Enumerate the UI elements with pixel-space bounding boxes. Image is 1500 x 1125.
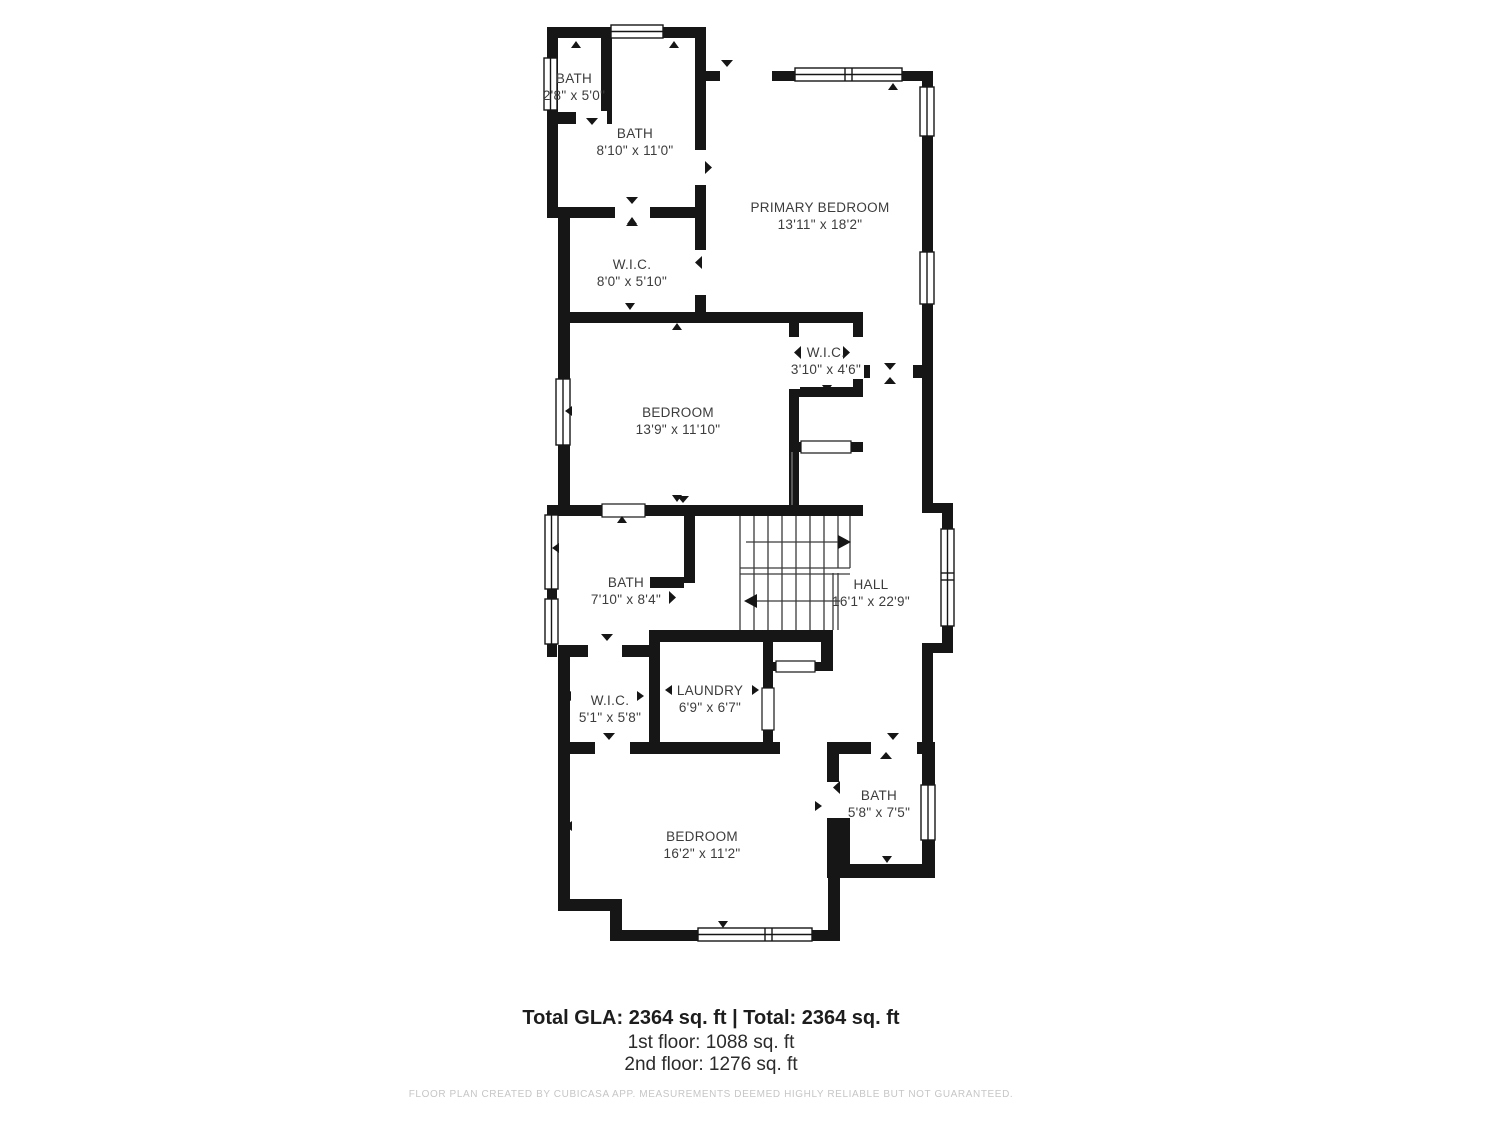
room-label-bedroom-lower: BEDROOM 16'2" x 11'2" bbox=[664, 828, 741, 862]
room-dims: 5'8" x 7'5" bbox=[848, 804, 910, 821]
room-label-bath-small: BATH 2'8" x 5'0" bbox=[543, 70, 605, 104]
total-area-text: Total GLA: 2364 sq. ft | Total: 2364 sq.… bbox=[522, 1007, 899, 1030]
room-dims: 8'10" x 11'0" bbox=[597, 142, 674, 159]
room-dims: 13'9" x 11'10" bbox=[636, 421, 721, 438]
room-label-wic-primary: W.I.C. 8'0" x 5'10" bbox=[597, 256, 667, 290]
room-name: BATH bbox=[543, 70, 605, 87]
room-name: BATH bbox=[591, 574, 661, 591]
room-dims: 3'10" x 4'6" bbox=[791, 361, 861, 378]
room-name: PRIMARY BEDROOM bbox=[750, 199, 889, 216]
disclaimer-text: FLOOR PLAN CREATED BY CUBICASA APP. MEAS… bbox=[409, 1089, 1014, 1100]
room-name: BEDROOM bbox=[636, 404, 721, 421]
room-label-laundry: LAUNDRY 6'9" x 6'7" bbox=[677, 682, 743, 716]
room-label-bath-upper: BATH 8'10" x 11'0" bbox=[597, 125, 674, 159]
room-name: HALL bbox=[832, 576, 910, 593]
room-name: BEDROOM bbox=[664, 828, 741, 845]
first-floor-area: 1st floor: 1088 sq. ft bbox=[628, 1032, 795, 1054]
room-dims: 5'1" x 5'8" bbox=[579, 709, 641, 726]
room-dims: 2'8" x 5'0" bbox=[543, 87, 605, 104]
second-floor-area: 2nd floor: 1276 sq. ft bbox=[624, 1054, 797, 1076]
room-label-wic-lower: W.I.C. 5'1" x 5'8" bbox=[579, 692, 641, 726]
floorplan-page: BATH 2'8" x 5'0" BATH 8'10" x 11'0" PRIM… bbox=[0, 0, 1500, 1125]
room-dims: 16'1" x 22'9" bbox=[832, 593, 910, 610]
room-label-hall: HALL 16'1" x 22'9" bbox=[832, 576, 910, 610]
room-name: W.I.C. bbox=[597, 256, 667, 273]
room-dims: 13'11" x 18'2" bbox=[750, 216, 889, 233]
room-label-primary-bedroom: PRIMARY BEDROOM 13'11" x 18'2" bbox=[750, 199, 889, 233]
room-dims: 16'2" x 11'2" bbox=[664, 845, 741, 862]
room-name: W.I.C. bbox=[579, 692, 641, 709]
room-dims: 7'10" x 8'4" bbox=[591, 591, 661, 608]
room-name: W.I.C. bbox=[791, 344, 861, 361]
room-label-bath-mid: BATH 7'10" x 8'4" bbox=[591, 574, 661, 608]
room-dims: 8'0" x 5'10" bbox=[597, 273, 667, 290]
floorplan-drawing bbox=[0, 0, 1500, 1125]
room-name: LAUNDRY bbox=[677, 682, 743, 699]
room-label-wic-small: W.I.C. 3'10" x 4'6" bbox=[791, 344, 861, 378]
room-name: BATH bbox=[848, 787, 910, 804]
room-name: BATH bbox=[597, 125, 674, 142]
room-dims: 6'9" x 6'7" bbox=[677, 699, 743, 716]
room-label-bath-lower: BATH 5'8" x 7'5" bbox=[848, 787, 910, 821]
room-label-bedroom-mid: BEDROOM 13'9" x 11'10" bbox=[636, 404, 721, 438]
